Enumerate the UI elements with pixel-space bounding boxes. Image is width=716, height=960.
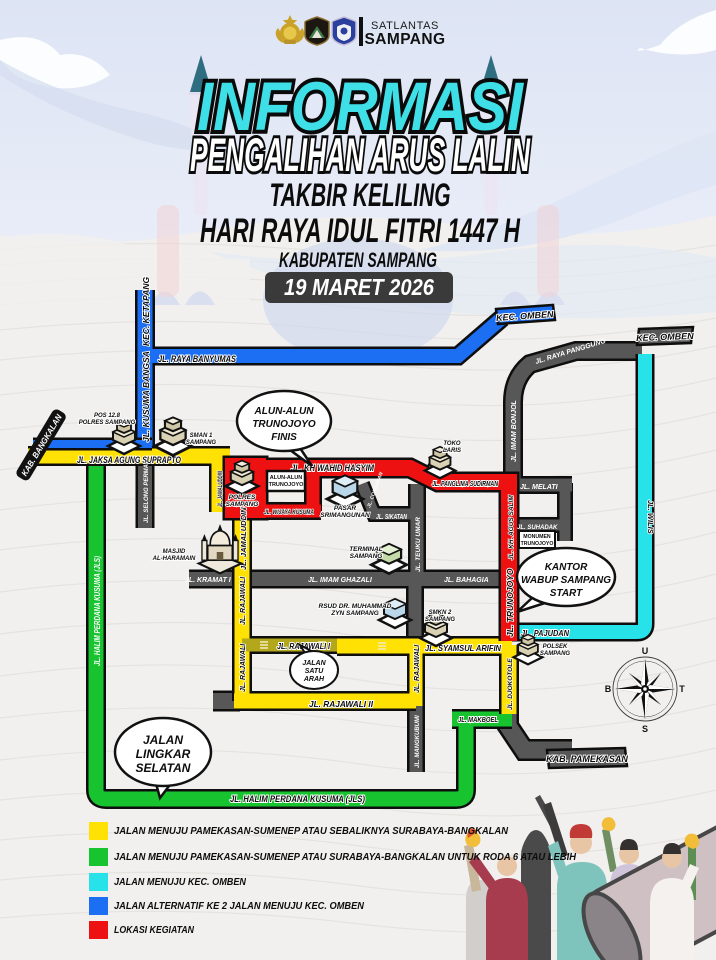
svg-text:JL. MANGKUBUMI: JL. MANGKUBUMI [415,715,421,768]
svg-text:SMKN 2: SMKN 2 [429,610,452,616]
svg-text:SAMPANG: SAMPANG [540,651,571,657]
svg-text:ALUN-ALUN: ALUN-ALUN [270,475,302,481]
svg-text:T: T [679,684,685,694]
svg-text:TRUNOJOYO: TRUNOJOYO [521,541,554,547]
svg-text:JL. KUSUMA BANGSA: JL. KUSUMA BANGSA [141,351,151,442]
svg-text:LOKASI KEGIATAN: LOKASI KEGIATAN [114,925,195,936]
svg-text:B: B [605,684,612,694]
svg-text:JALAN: JALAN [143,733,183,747]
svg-text:TRUNOJOYO: TRUNOJOYO [269,482,305,488]
svg-text:TAKBIR KELILING: TAKBIR KELILING [270,177,451,213]
svg-text:JALAN MENUJU KEC. OMBEN: JALAN MENUJU KEC. OMBEN [114,877,247,888]
svg-text:TRUNOJOYO: TRUNOJOYO [252,419,316,430]
svg-text:RSUD DR. MUHAMMAD: RSUD DR. MUHAMMAD [319,603,392,610]
svg-text:SELATAN: SELATAN [136,761,191,775]
svg-text:MONUMEN: MONUMEN [523,534,551,540]
svg-text:JL. IMAM BONJOL: JL. IMAM BONJOL [511,400,518,462]
svg-text:JL. WIJAYA KUSUMA: JL. WIJAYA KUSUMA [264,509,314,516]
svg-text:POLRES: POLRES [229,494,256,501]
svg-text:MASJID: MASJID [163,549,186,555]
svg-text:JL. SIKATAN: JL. SIKATAN [376,514,408,521]
svg-text:JALAN MENUJU PAMEKASAN-SUMENEP: JALAN MENUJU PAMEKASAN-SUMENEP ATAU SURA… [114,852,577,863]
svg-text:SAMPANG: SAMPANG [226,501,259,508]
svg-text:ZYN SAMPANG: ZYN SAMPANG [330,610,379,617]
svg-text:S: S [642,724,648,734]
svg-text:SAMPANG: SAMPANG [425,617,456,623]
svg-text:TOKO: TOKO [443,441,461,447]
svg-text:KEC. OMBEN: KEC. OMBEN [636,331,694,343]
svg-text:KAB. PAMEKASAN: KAB. PAMEKASAN [546,754,628,764]
svg-text:JL. JAMALUDDIN: JL. JAMALUDDIN [217,471,224,507]
svg-text:SAMPANG: SAMPANG [365,31,446,48]
svg-text:JL. HALIM PERDANA KUSUMA (JLS): JL. HALIM PERDANA KUSUMA (JLS) [230,794,365,804]
svg-text:JL. MELATI: JL. MELATI [520,484,559,491]
svg-text:JL. JAMALUDDIN: JL. JAMALUDDIN [239,507,248,570]
svg-text:JALAN ALTERNATIF KE 2 JALAN ME: JALAN ALTERNATIF KE 2 JALAN MENUJU KEC. … [114,901,365,912]
svg-text:ALUN-ALUN: ALUN-ALUN [254,406,315,417]
svg-text:JL. RAJAWALI: JL. RAJAWALI [414,644,421,693]
svg-text:ARAH: ARAH [303,676,325,683]
svg-text:SMAN 1: SMAN 1 [190,433,213,439]
svg-text:TERMINAL: TERMINAL [349,546,383,553]
svg-text:JL. WILIS: JL. WILIS [646,500,655,534]
svg-text:SAMPANG: SAMPANG [186,440,217,446]
svg-text:JL. PANGLIMA SUDIRMAN: JL. PANGLIMA SUDIRMAN [432,479,498,488]
svg-text:KANTOR: KANTOR [545,562,588,573]
svg-text:AL-HARAMAIN: AL-HARAMAIN [152,556,196,562]
svg-text:PENGALIHAN ARUS LALIN: PENGALIHAN ARUS LALIN [190,128,531,181]
svg-text:JL. MAKBOEL: JL. MAKBOEL [458,715,498,724]
svg-text:LARIS: LARIS [443,448,461,454]
svg-text:PASAR: PASAR [334,505,357,512]
svg-text:START: START [550,588,583,599]
svg-text:POLRES SAMPANG: POLRES SAMPANG [79,420,136,426]
svg-text:JALAN MENUJU PAMEKASAN-SUMENEP: JALAN MENUJU PAMEKASAN-SUMENEP ATAU SEBA… [114,826,509,837]
svg-text:JL. IMAM GHAZALI: JL. IMAM GHAZALI [308,577,373,584]
svg-text:JL. RAYA BANYUMAS: JL. RAYA BANYUMAS [158,354,236,364]
svg-text:JALAN: JALAN [302,660,326,667]
svg-text:FINIS: FINIS [271,432,297,443]
svg-text:KABUPATEN SAMPANG: KABUPATEN SAMPANG [279,249,437,272]
svg-text:HARI RAYA IDUL FITRI 1447 H: HARI RAYA IDUL FITRI 1447 H [200,212,521,250]
svg-text:JL. KRAMAT I: JL. KRAMAT I [185,577,232,584]
svg-text:JL. RAJAWALI: JL. RAJAWALI [240,576,247,625]
svg-text:JL. SELONG PERMAI: JL. SELONG PERMAI [144,462,150,523]
svg-text:KEC. KETAPANG: KEC. KETAPANG [141,277,151,346]
svg-text:JL. RAJAWALI: JL. RAJAWALI [240,643,247,692]
svg-text:JL. RAJAWALI II: JL. RAJAWALI II [309,699,374,709]
svg-text:WABUP SAMPANG: WABUP SAMPANG [521,575,611,586]
svg-text:POLSEK: POLSEK [543,644,568,650]
svg-text:SATU: SATU [305,668,324,675]
svg-text:SAMPANG: SAMPANG [350,553,383,560]
svg-text:JL. TRUNOJOYO: JL. TRUNOJOYO [505,568,515,637]
svg-text:JL. JAKSA AGUNG SUPRAPTO: JL. JAKSA AGUNG SUPRAPTO [77,455,181,465]
svg-text:POS 12.8: POS 12.8 [94,413,121,419]
svg-text:JL. TEUKU UMAR: JL. TEUKU UMAR [415,517,422,572]
svg-text:JL. BAHAGIA: JL. BAHAGIA [444,577,489,584]
svg-text:LINGKAR: LINGKAR [136,747,191,761]
svg-text:19 MARET 2026: 19 MARET 2026 [284,274,434,300]
svg-text:JL. HALIM PERDANA KUSUMA (JLS): JL. HALIM PERDANA KUSUMA (JLS) [93,556,102,666]
svg-text:SRIMANGUNAN: SRIMANGUNAN [320,512,370,519]
svg-text:U: U [642,646,649,656]
svg-text:JL. KH. AGUS SALIM: JL. KH. AGUS SALIM [508,495,515,560]
svg-text:JL. DJOKOTOLE: JL. DJOKOTOLE [507,658,514,710]
